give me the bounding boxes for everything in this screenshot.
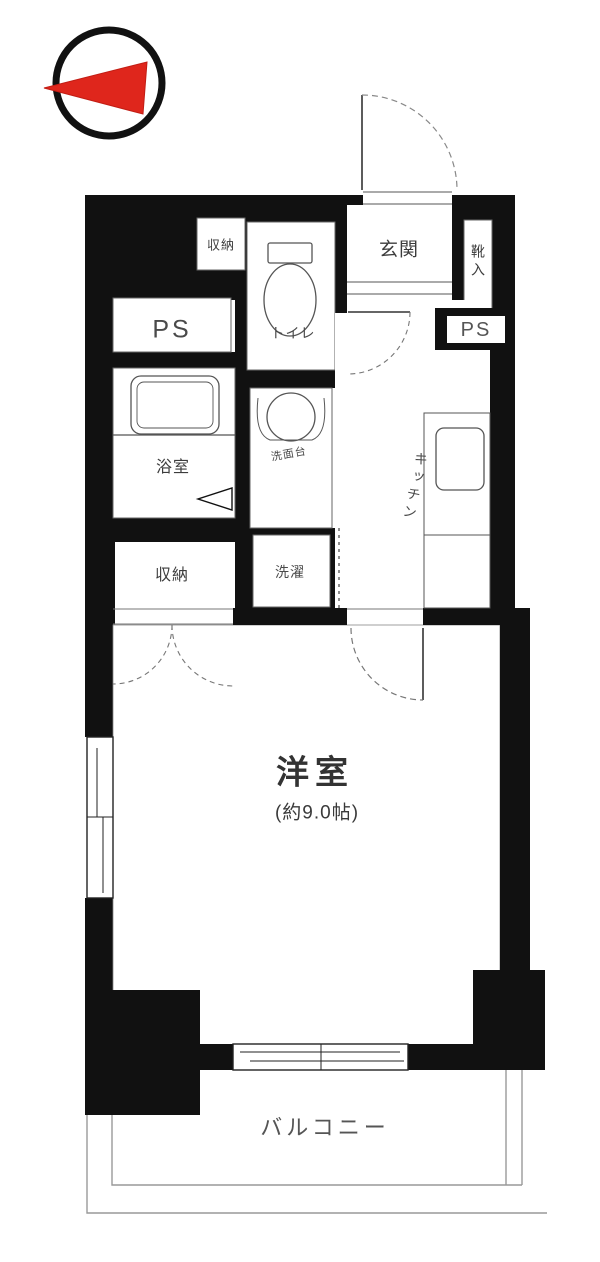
- bathroom-label: 浴室: [156, 460, 190, 476]
- wall: [113, 352, 235, 368]
- wall: [233, 608, 347, 625]
- western-room-size: (約9.0帖): [275, 804, 359, 823]
- front-door-arc: [362, 95, 457, 190]
- laundry-label: 洗濯: [275, 565, 305, 579]
- western-room-label: 洋室: [276, 756, 354, 789]
- corner-column: [473, 970, 545, 1070]
- wall: [335, 195, 347, 313]
- ps-left-label: PS: [152, 318, 191, 343]
- ps-right-label: PS: [461, 320, 492, 340]
- passage: [335, 313, 347, 608]
- wall-bottom: [200, 1044, 235, 1070]
- floor-plan: 収納 トイレ 玄関 靴入 PS PS 浴室 洗面台 キッチン 収納 洗濯 洋室 …: [0, 0, 600, 1262]
- wall: [247, 370, 335, 388]
- wall-right-lower: [500, 610, 530, 972]
- western-room-floor: [113, 625, 500, 1045]
- closet-label: 収納: [155, 568, 189, 584]
- shoe-cabinet-label: 靴入: [471, 244, 485, 280]
- toilet-label: トイレ: [271, 326, 316, 340]
- wall-left-lower: [85, 898, 115, 992]
- wall-right-upper: [490, 195, 515, 610]
- wall-left: [85, 195, 115, 737]
- balcony-label: バルコニー: [260, 1117, 390, 1139]
- wall-bottom: [408, 1044, 475, 1070]
- toilet-room: [247, 222, 335, 370]
- closet-top-label: 収納: [207, 239, 235, 252]
- floor-plan-drawing: [0, 0, 600, 1262]
- corner-column: [85, 990, 200, 1115]
- wall: [113, 518, 235, 542]
- north-arrow-icon: [44, 30, 162, 136]
- wall: [452, 195, 464, 312]
- entrance-label: 玄関: [379, 241, 419, 260]
